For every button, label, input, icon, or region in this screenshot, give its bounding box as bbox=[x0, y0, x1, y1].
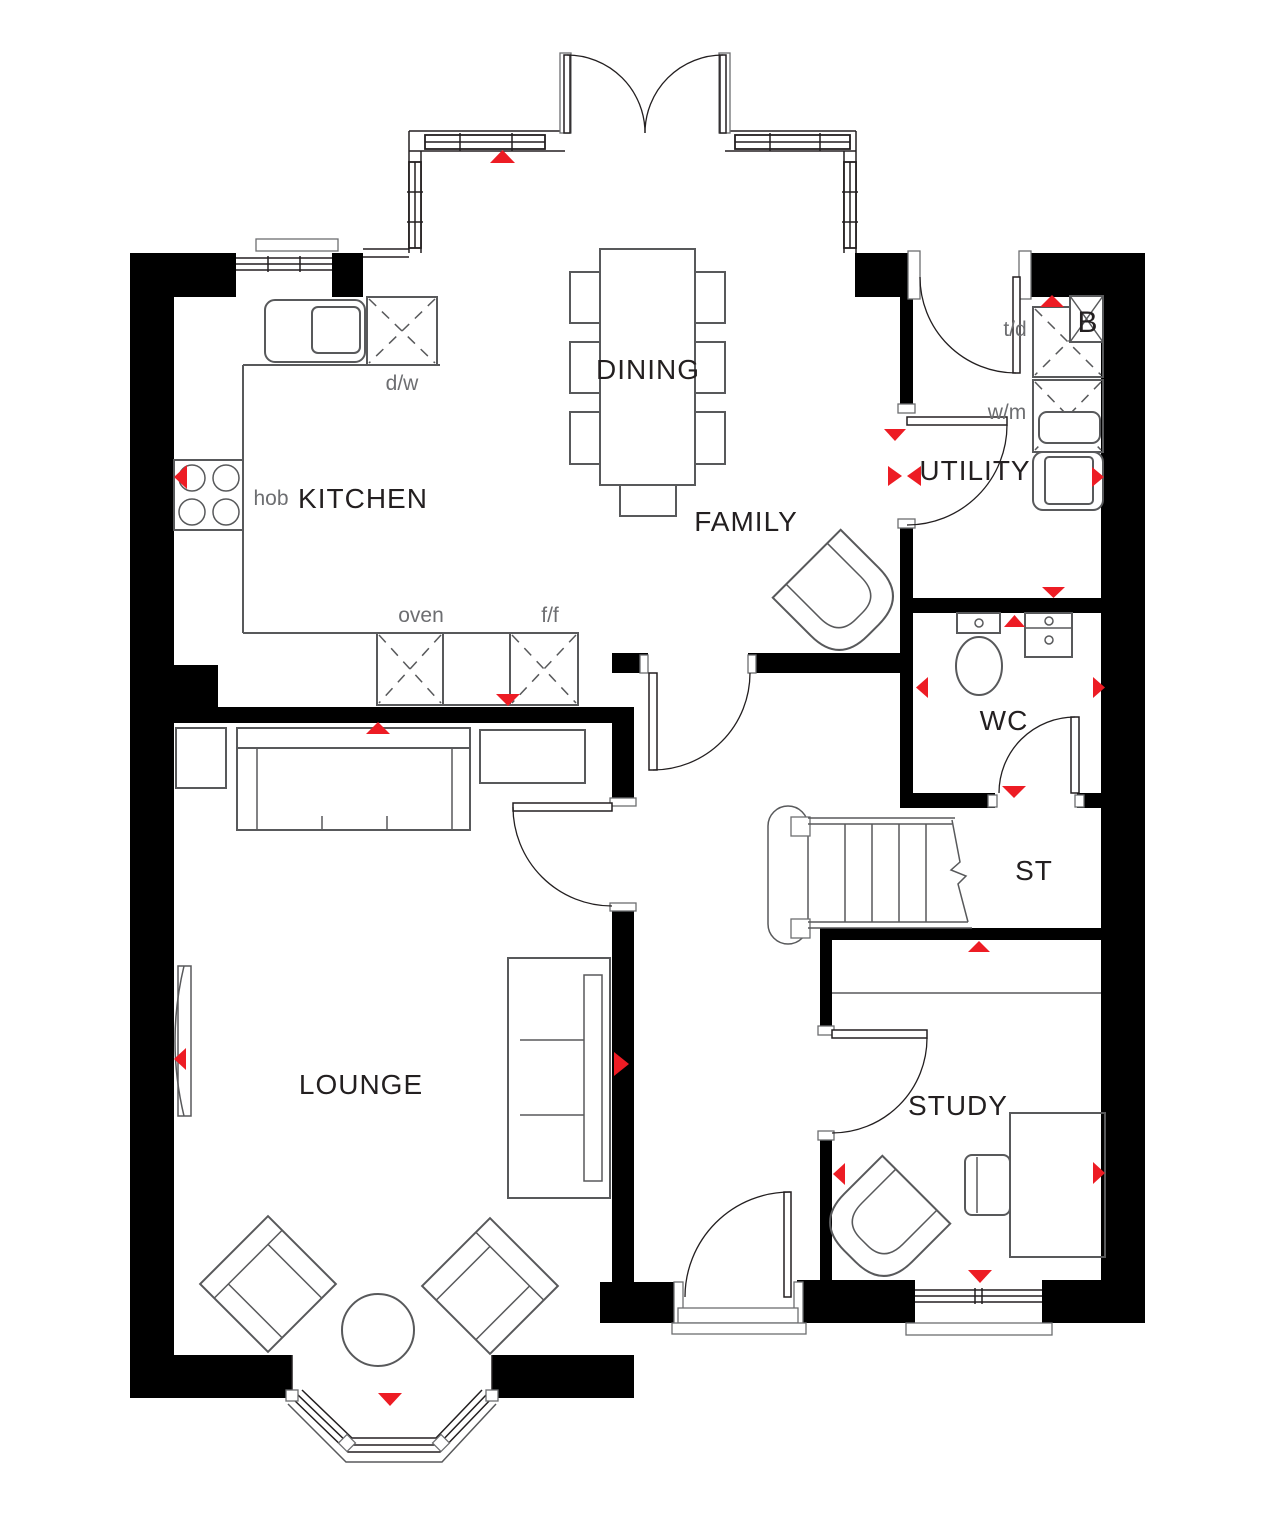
wall-study-bottom-left bbox=[797, 1280, 915, 1323]
family-door-leaf bbox=[649, 673, 657, 770]
marker-family-window bbox=[490, 150, 515, 163]
oven-unit bbox=[377, 633, 510, 705]
dining-chair bbox=[695, 272, 725, 323]
dining-chair bbox=[695, 412, 725, 464]
interior-walls bbox=[130, 297, 1103, 1323]
window-family-right bbox=[735, 133, 850, 151]
label-fridge-freezer: f/f bbox=[541, 604, 559, 627]
front-door-leaf bbox=[784, 1192, 791, 1297]
label-dining: DINING bbox=[596, 354, 700, 385]
floor-plan-page: KITCHEN DINING FAMILY UTILITY WC ST LOUN… bbox=[0, 0, 1280, 1526]
wall-kitchen-lounge bbox=[130, 707, 630, 723]
wall-study-west-lower bbox=[820, 1133, 832, 1282]
family-armchair bbox=[773, 530, 907, 664]
window-study bbox=[906, 1288, 1052, 1335]
wall-utility-west-upper bbox=[900, 297, 913, 412]
stairs bbox=[768, 806, 1101, 993]
label-family: FAMILY bbox=[694, 506, 798, 537]
marker-wc-west bbox=[916, 677, 928, 698]
wall-study-west-upper bbox=[820, 928, 832, 1035]
family-door-swing bbox=[653, 673, 750, 770]
back-door bbox=[908, 251, 1031, 373]
marker-utility-pair-right bbox=[888, 466, 902, 486]
lounge-round-table bbox=[342, 1294, 414, 1366]
wall-stairs-south bbox=[820, 928, 1103, 940]
wall-top-utility-left bbox=[855, 253, 915, 297]
wall-utility-wc bbox=[900, 598, 1103, 613]
washing-machine-unit bbox=[1033, 380, 1103, 452]
window-kitchen bbox=[236, 239, 338, 272]
label-study: STUDY bbox=[908, 1090, 1008, 1121]
sofa bbox=[237, 728, 470, 830]
family-bay bbox=[363, 53, 858, 257]
bay-armchair-left bbox=[200, 1216, 336, 1352]
label-store: ST bbox=[1015, 855, 1053, 886]
marker-utility-door bbox=[884, 429, 906, 441]
wall-wc-south-left bbox=[900, 793, 995, 808]
study-window-sill bbox=[906, 1323, 1052, 1335]
marker-lounge-bay bbox=[378, 1393, 402, 1406]
bay-armchair-right bbox=[422, 1218, 558, 1354]
label-wc: WC bbox=[980, 705, 1029, 736]
marker-store bbox=[968, 941, 990, 952]
wall-left bbox=[130, 253, 174, 1398]
stairs-newel-top bbox=[791, 817, 810, 836]
wall-utility-west-lower bbox=[900, 520, 913, 673]
lounge-door bbox=[513, 798, 636, 911]
label-oven: oven bbox=[398, 604, 444, 627]
dishwasher-unit bbox=[367, 297, 437, 365]
lounge-bay bbox=[286, 1355, 498, 1462]
wall-family-south-right bbox=[748, 653, 913, 673]
lounge-bay-outer bbox=[292, 1398, 492, 1452]
lounge-door-leaf bbox=[513, 803, 612, 811]
stairs-newel-bottom bbox=[791, 919, 810, 938]
dining-chair bbox=[620, 485, 676, 516]
marker-study-west bbox=[833, 1163, 845, 1185]
lounge-furniture bbox=[175, 728, 610, 1366]
wall-lounge-bottom-right bbox=[492, 1355, 634, 1398]
front-door-threshold bbox=[678, 1308, 798, 1323]
label-utility: UTILITY bbox=[919, 455, 1030, 486]
front-door-swing bbox=[685, 1192, 790, 1297]
wall-lounge-east-upper bbox=[612, 707, 634, 806]
study-door bbox=[818, 1026, 927, 1140]
label-boiler: B bbox=[1077, 306, 1098, 339]
study-furniture bbox=[816, 1113, 1105, 1290]
lounge-bay-sill bbox=[288, 1404, 496, 1462]
label-dishwasher: d/w bbox=[386, 372, 420, 395]
wall-lounge-east-lower bbox=[612, 907, 634, 1323]
french-doors bbox=[560, 53, 730, 133]
front-door bbox=[672, 1192, 806, 1334]
label-kitchen: KITCHEN bbox=[298, 483, 428, 514]
wall-top-kitchen-left bbox=[130, 253, 236, 297]
lounge-side-table-left bbox=[176, 728, 226, 788]
dining-chair bbox=[570, 272, 600, 323]
study-desk bbox=[1010, 1113, 1105, 1257]
label-hob: hob bbox=[253, 487, 288, 510]
study-monitor bbox=[965, 1155, 1010, 1215]
marker-study-window bbox=[968, 1270, 992, 1283]
marker-wc-basin bbox=[1004, 615, 1025, 627]
kitchen-window-sill bbox=[256, 239, 338, 251]
back-door-swing bbox=[920, 277, 1016, 373]
marker-wc-door bbox=[1002, 786, 1026, 798]
wall-lounge-bottom-left bbox=[130, 1355, 292, 1398]
study-door-leaf bbox=[832, 1030, 927, 1038]
kitchen-sink bbox=[265, 300, 365, 362]
toilet bbox=[956, 613, 1002, 695]
wall-right bbox=[1101, 253, 1145, 1323]
window-family-left bbox=[425, 133, 545, 151]
window-family-side-right bbox=[842, 162, 858, 248]
french-door-leaf-left bbox=[564, 55, 570, 133]
wc-basin bbox=[1025, 613, 1072, 657]
french-door-swing-left bbox=[567, 55, 645, 133]
wc-door-leaf bbox=[1071, 717, 1079, 793]
wall-top-kitchen-right bbox=[332, 253, 363, 297]
label-lounge: LOUNGE bbox=[299, 1069, 423, 1100]
wall-study-bottom-right bbox=[1042, 1280, 1145, 1323]
front-door-step bbox=[672, 1323, 806, 1334]
family-door bbox=[640, 655, 756, 770]
fridge-freezer-unit bbox=[510, 633, 578, 705]
floor-plan-svg: KITCHEN DINING FAMILY UTILITY WC ST LOUN… bbox=[0, 0, 1280, 1526]
label-washing-machine: w/m bbox=[987, 401, 1027, 424]
lounge-radiator bbox=[175, 966, 191, 1116]
stairs-break-line bbox=[951, 820, 968, 922]
lounge-side-unit-right bbox=[480, 730, 585, 783]
label-tumble-dryer: t/d bbox=[1003, 318, 1026, 341]
french-door-swing-right bbox=[645, 55, 723, 133]
marker-utility-south bbox=[1042, 587, 1065, 598]
dining-chair bbox=[570, 412, 600, 464]
tv-unit bbox=[508, 958, 610, 1198]
lounge-door-swing bbox=[513, 807, 612, 906]
french-door-leaf-right bbox=[720, 55, 726, 133]
wall-wc-west bbox=[900, 673, 913, 808]
window-family-side-left bbox=[407, 162, 423, 248]
